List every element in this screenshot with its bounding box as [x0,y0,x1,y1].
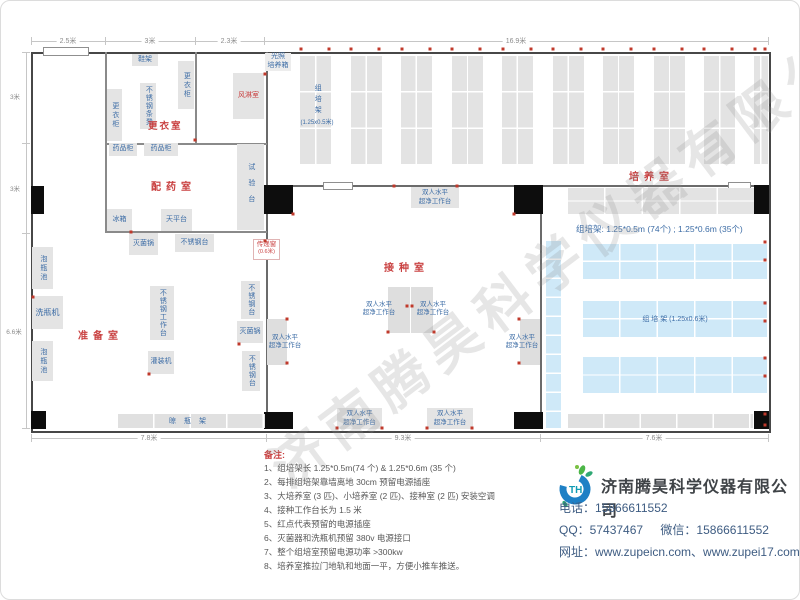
room-label-culture: 培养室 [629,168,674,183]
power-outlet-dot [406,305,409,308]
room-label-inoculation: 接种室 [384,259,429,274]
note-item: 8、培养室推拉门地轨和地面一平，方便小推车推送。 [264,560,464,572]
bottle-washer: 洗瓶机 [32,296,63,329]
steel-table: 不锈钢台 [242,351,260,391]
culture-rack-note: 组培架: 1.25*0.5m (74个) ; 1.25*0.6m (35个) [576,223,743,235]
balance-table: 天平台 [161,209,192,231]
power-outlet-dot [350,48,353,51]
power-outlet-dot [502,48,505,51]
laminar-flow-label: 双人水平 超净工作台 [504,334,540,351]
company-qq-wechat: QQ：57437467 微信：15866611552 [559,521,769,538]
room-label-dispensing: 配药室 [151,178,196,193]
blue-rack-band [583,357,767,393]
pillar [31,411,46,429]
floor-plan-page: 2.5米 3米 2.3米 16.9米 3米 3米 6.6米 7.8米 9.3米 … [0,0,800,600]
culture-rack [754,56,768,164]
power-outlet-dot [456,185,459,188]
power-outlet-dot [580,48,583,51]
power-outlet-dot [411,305,414,308]
culture-rack [654,56,685,164]
culture-rack [401,56,432,164]
note-item: 3、大培养室 (3 匹)、小培养室 (2 匹)、接种室 (2 匹) 安装空调 [264,490,495,502]
locker: 更衣柜 [178,61,194,109]
power-outlet-dot [429,48,432,51]
power-outlet-dot [264,73,267,76]
power-outlet-dot [286,362,289,365]
power-outlet-dot [518,362,521,365]
power-outlet-dot [764,357,767,360]
entrance-door [43,47,89,56]
power-outlet-dot [513,213,516,216]
steel-table: 不锈钢台 [175,234,214,252]
web-value: www.zupeicn.com、www.zupei17.com [595,545,800,559]
svg-text:TH: TH [569,485,582,496]
shoe-rack: 鞋架 [132,54,158,66]
power-outlet-dot [754,48,757,51]
company-web: 网址：www.zupeicn.com、www.zupei17.com [559,543,800,560]
air-shower: 风淋室 [233,73,264,119]
power-outlet-dot [703,48,706,51]
culture-rack-band-bottom [568,414,753,428]
power-outlet-dot [32,296,35,299]
power-outlet-dot [328,48,331,51]
culture-rack [704,56,735,164]
notes-title: 备注: [264,448,285,461]
power-outlet-dot [148,373,151,376]
power-outlet-dot [764,302,767,305]
company-phone: 电话：15866611552 [559,499,668,516]
power-outlet-dot [764,320,767,323]
power-outlet-dot [433,331,436,334]
power-outlet-dot [479,48,482,51]
note-item: 7、整个组培室预留电源功率 >300kw [264,546,403,558]
power-outlet-dot [764,241,767,244]
sterilizer: 灭菌锅 [237,321,263,343]
blue-rack-band: 组 培 架 (1.25x0.6米) [583,301,767,337]
filling-machine: 灌装机 [148,351,174,374]
power-outlet-dot [264,240,267,243]
pillar [31,186,44,214]
soak-pool: 泡瓶池 [32,341,53,381]
qq-label: QQ： [559,523,590,537]
phone-label: 电话： [559,501,595,515]
qq-value: 57437467 [590,523,643,537]
power-outlet-dot [336,427,339,430]
power-outlet-dot [286,318,289,321]
phone-value: 15866611552 [595,501,668,515]
culture-rack [603,56,634,164]
web-label: 网址： [559,545,595,559]
laminar-flow-bench: 双人水平 超净工作台 [427,408,473,429]
inoculation-door [323,182,353,190]
blue-rack-band [583,244,767,279]
power-outlet-dot [401,48,404,51]
laminar-flow-label: 双人水平 超净工作台 [359,301,399,318]
fridge: 冰箱 [107,209,132,231]
power-outlet-dot [292,213,295,216]
wall-inoculation-culture [540,186,542,429]
wechat-value: 15866611552 [696,523,769,537]
laminar-flow-bench: 双人水平 超净工作台 [337,408,382,429]
rack-size-label-dims: (1.25x0.5米) [295,120,339,127]
note-item: 2、每排组培架靠墙离地 30cm 预留电源插座 [264,476,430,488]
power-outlet-dot [530,48,533,51]
pillar [264,412,293,429]
rack-size-label-title: 组培架 [313,84,321,117]
power-outlet-dot [300,48,303,51]
power-outlet-dot [130,231,133,234]
power-outlet-dot [764,375,767,378]
medicine-cabinet: 药品柜 [144,143,178,156]
culture-rack [351,56,382,164]
culture-rack [553,56,584,164]
wall-changing-divider [195,52,197,143]
power-outlet-dot [764,424,767,427]
power-outlet-dot [238,343,241,346]
pillar [514,185,543,214]
power-outlet-dot [451,48,454,51]
pass-window: 传递窗 (0.6米) [253,239,280,260]
pillar [754,185,769,214]
power-outlet-dot [518,318,521,321]
power-outlet-dot [381,427,384,430]
note-item: 5、红点代表预留的电源插座 [264,518,371,530]
power-outlet-dot [552,48,555,51]
medicine-cabinet: 药品柜 [109,143,137,156]
power-outlet-dot [630,48,633,51]
steel-worktable: 不锈钢工作台 [150,286,174,340]
power-outlet-dot [194,139,197,142]
power-outlet-dot [653,48,656,51]
test-bench: 试验台 [237,144,264,230]
locker: 更衣柜 [107,89,122,141]
pillar [514,412,543,429]
steel-table: 不锈钢台 [241,281,260,319]
note-item: 6、灭菌器和洗瓶机预留 380v 电源接口 [264,532,411,544]
laminar-flow-bench: 双人水平 超净工作台 [411,187,459,208]
pillar [754,411,769,429]
drying-rack: 晾瓶架 [118,414,265,428]
note-item: 1、组培架长 1.25*0.5m(74 个) & 1.25*0.6m (35 个… [264,462,456,474]
power-outlet-dot [764,259,767,262]
laminar-flow-label: 双人水平 超净工作台 [267,334,303,351]
power-outlet-dot [426,427,429,430]
culture-rack [452,56,483,164]
power-outlet-dot [764,413,767,416]
light-incubator: 光照 培养箱 [265,53,291,71]
pass-window-size: (0.6米) [254,249,279,256]
culture-rack [502,56,533,164]
wechat-label: 微信： [660,523,696,537]
power-outlet-dot [471,427,474,430]
power-outlet-dot [393,185,396,188]
power-outlet-dot [681,48,684,51]
room-label-prep: 准备室 [78,327,123,342]
power-outlet-dot [731,48,734,51]
note-item: 4、接种工作台长为 1.5 米 [264,504,362,516]
power-outlet-dot [378,48,381,51]
power-outlet-dot [387,331,390,334]
sterilizer: 灭菌锅 [129,233,158,255]
blue-rack-label: 组 培 架 (1.25x0.6米) [642,314,707,324]
room-label-changing: 更衣室 [148,118,183,132]
power-outlet-dot [764,48,767,51]
pillar [264,185,293,214]
soak-pool: 泡瓶池 [32,247,53,289]
power-outlet-dot [602,48,605,51]
rack-size-label: 组培架 (1.25x0.5米) [295,84,339,127]
culture-rack-band [568,188,754,214]
laminar-flow-label: 双人水平 超净工作台 [413,301,453,318]
blue-rack-vertical [546,241,561,428]
